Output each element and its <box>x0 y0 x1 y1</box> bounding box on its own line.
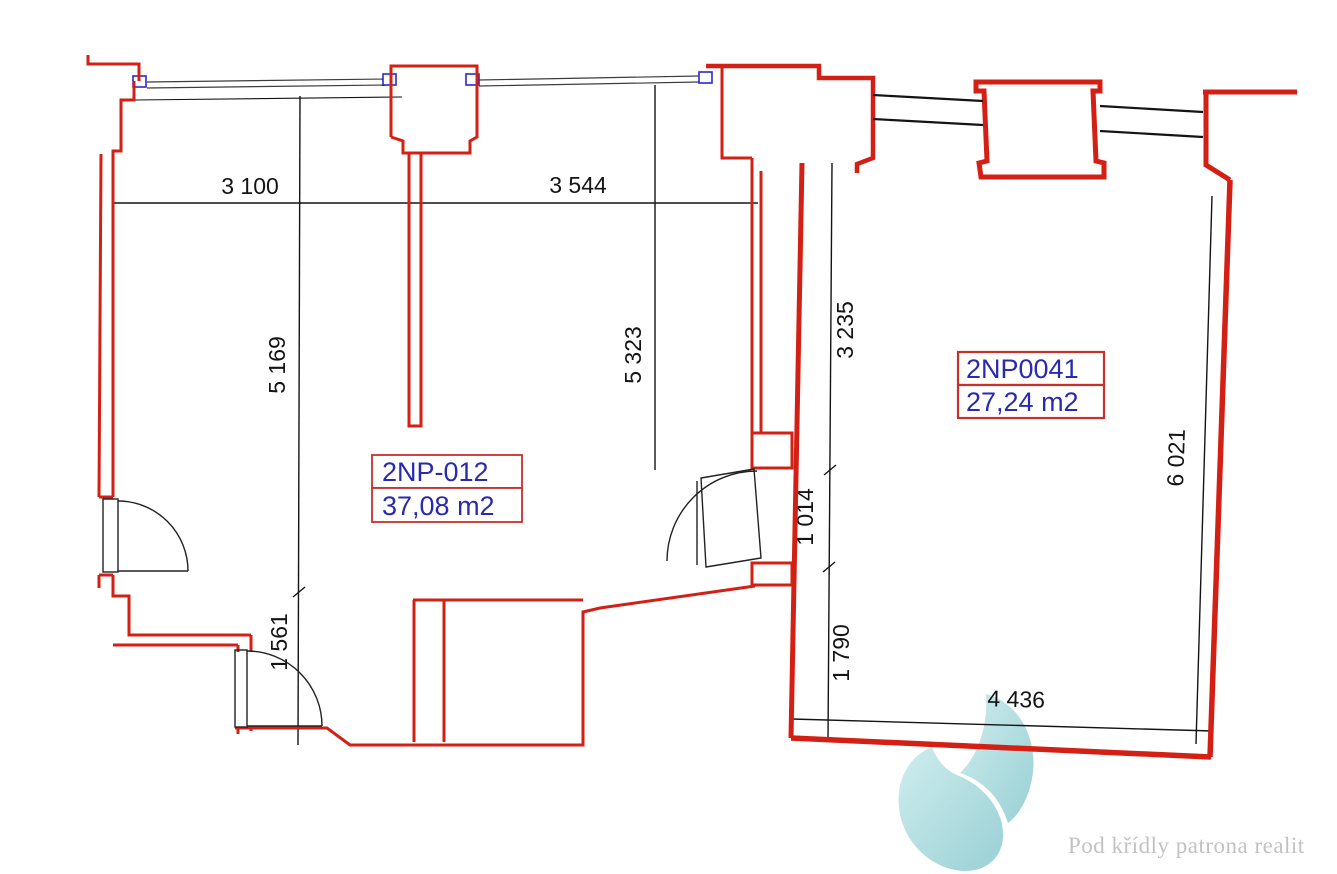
wall-inner-face-line <box>135 97 402 100</box>
wall-outline <box>99 575 113 588</box>
room-area: 37,08 m2 <box>382 491 495 521</box>
wall-outline <box>722 66 752 158</box>
wall-outline <box>113 81 134 497</box>
dim-right-upper-height: 3 235 <box>832 301 858 359</box>
watermark: Pod křídly patrona realit <box>899 694 1305 871</box>
floor-plan-canvas: Pod křídly patrona realit 3 100 3 544 5 … <box>0 0 1337 874</box>
window-opening-line <box>873 95 983 101</box>
dim-left-lower-height: 1 561 <box>266 613 292 671</box>
window-glazing-line <box>147 79 385 82</box>
room-area: 27,24 m2 <box>966 387 1079 417</box>
door-leaf <box>103 499 118 572</box>
wall-outline <box>88 55 139 81</box>
floor-plan-page: Pod křídly patrona realit 3 100 3 544 5 … <box>0 0 1337 874</box>
wall-outline <box>1206 92 1230 180</box>
dimension-line <box>1196 196 1212 744</box>
window-glazing-line <box>479 76 699 80</box>
window-glazing-line <box>479 82 699 86</box>
window-glazing-line <box>147 85 385 88</box>
room-code: 2NP-012 <box>382 457 489 487</box>
dim-right-side-height: 6 021 <box>1162 429 1190 487</box>
wall-outline <box>235 586 755 745</box>
dim-right-lower-height: 1 790 <box>828 624 854 682</box>
door-swing-arc <box>118 501 188 571</box>
window-opening-line <box>1100 131 1203 137</box>
wall-outline <box>113 575 251 635</box>
window-opening-line <box>873 119 983 125</box>
room-label-left: 2NP-012 37,08 m2 <box>372 455 522 522</box>
partition-stub <box>409 153 421 426</box>
room-labels: 2NP-012 37,08 m2 2NP0041 27,24 m2 <box>372 352 1104 522</box>
room-code: 2NP0041 <box>966 354 1079 384</box>
window-opening-line <box>1100 106 1203 112</box>
dim-left-width-b: 3 544 <box>549 172 607 198</box>
dim-left-height-a: 5 169 <box>264 336 290 394</box>
dim-left-width-a: 3 100 <box>221 173 279 199</box>
dimension-line <box>298 96 300 745</box>
left-flat-walls <box>88 55 792 745</box>
window-marker-icon <box>699 72 712 83</box>
watermark-tagline: Pod křídly patrona realit <box>1068 833 1305 858</box>
windows <box>133 72 712 88</box>
interior-wall-stub <box>414 600 444 742</box>
wall-outline <box>113 635 251 652</box>
door-leaf <box>235 650 247 727</box>
door-jamb-block <box>752 563 792 585</box>
wall-outline <box>752 158 761 433</box>
bay-window-outline <box>976 82 1104 177</box>
pillar-outline <box>391 66 477 153</box>
dim-right-bottom-width: 4 436 <box>987 685 1045 713</box>
wall-outline <box>99 154 101 497</box>
wall-outline <box>1210 180 1230 757</box>
door-jamb-block <box>752 433 792 468</box>
door-swing-arc <box>667 471 757 561</box>
dim-left-height-b: 5 323 <box>620 326 646 384</box>
dimension-labels: 3 100 3 544 5 169 5 323 1 561 3 235 1 01… <box>221 172 1190 713</box>
room-label-right: 2NP0041 27,24 m2 <box>958 352 1104 418</box>
